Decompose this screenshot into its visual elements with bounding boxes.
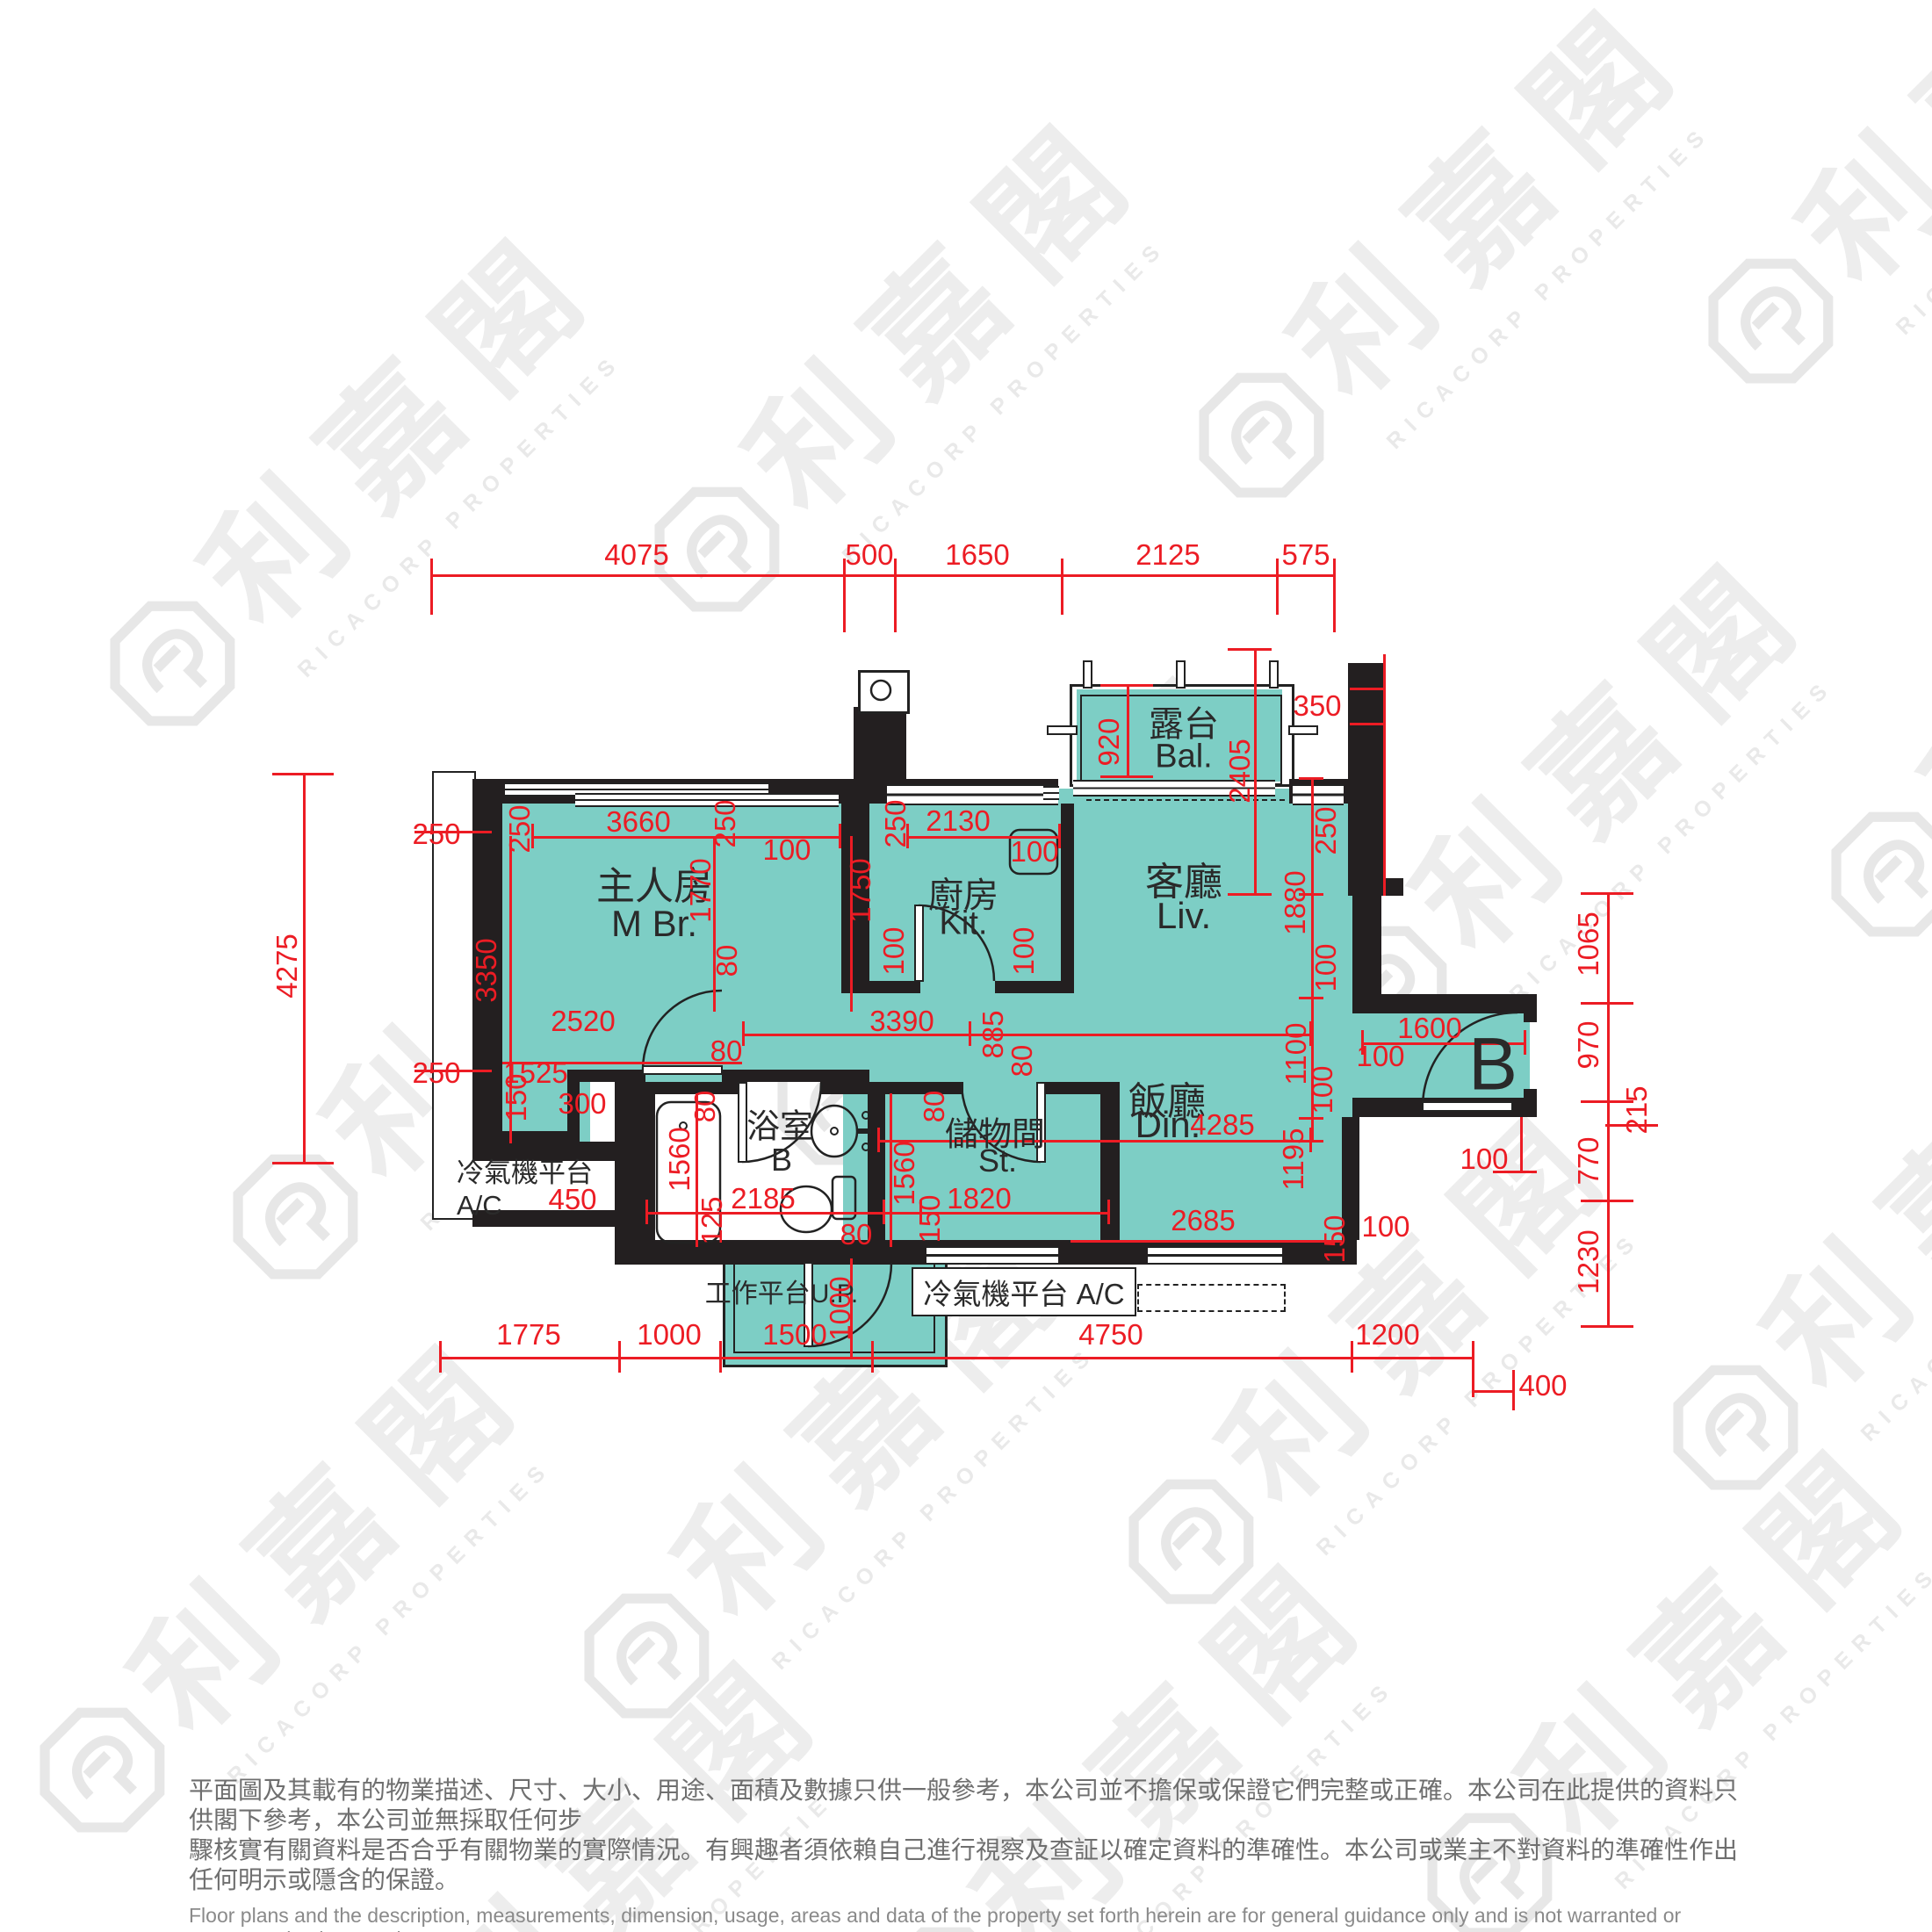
dim-label: 4750 — [1078, 1318, 1143, 1352]
room-label-living-room-en: Liv. — [1157, 895, 1211, 937]
dimline-2685 — [1071, 1240, 1342, 1243]
dim-label: 970 — [1572, 1020, 1605, 1069]
dim-label: 250 — [879, 799, 912, 847]
tap-knob-2 — [862, 1143, 869, 1150]
tick-bot-5 — [1472, 1341, 1474, 1397]
dim-label: 2130 — [926, 804, 990, 838]
tick-1820-r — [1107, 1200, 1110, 1224]
entrance-flat-letter: B — [1468, 1022, 1517, 1107]
dimline-920 — [1127, 684, 1129, 777]
dim-label: 100 — [1309, 943, 1343, 991]
dim-label: 250 — [412, 818, 460, 851]
dim-label: 250 — [503, 804, 537, 853]
dim-label: 250 — [709, 799, 742, 847]
room-label-storage-en: St. — [978, 1143, 1017, 1179]
tick-bot-2 — [719, 1341, 722, 1373]
dimline-right-column — [1607, 892, 1610, 1325]
room-label-kitchen-en: Kit. — [940, 905, 988, 943]
dim-label: 300 — [558, 1087, 606, 1121]
dim-label: 1065 — [1572, 912, 1605, 976]
dim-label: 100 — [877, 926, 911, 975]
dim-label: 4275 — [270, 934, 304, 998]
tick-1600-r — [1524, 1030, 1526, 1055]
dim-label: 3390 — [869, 1005, 934, 1038]
tick-3660-r — [839, 824, 841, 848]
tick-bot-0 — [439, 1341, 442, 1373]
bathroom-sink — [811, 1106, 857, 1157]
tick-top-4 — [1276, 559, 1279, 615]
dim-label: 2185 — [731, 1182, 795, 1215]
dim-label: 80 — [688, 1091, 722, 1123]
tick-bot-4 — [1351, 1341, 1353, 1373]
dimline-corridor-100 — [1520, 1117, 1523, 1171]
tick-4285-l — [877, 1128, 880, 1152]
dim-label: 2405 — [1223, 739, 1257, 803]
dim-label: 920 — [1092, 717, 1126, 766]
bathroom-sink-drain — [831, 1128, 838, 1135]
dim-label: 1600 — [1397, 1012, 1461, 1045]
tick-3390-l — [742, 1021, 745, 1046]
dim-label: 80 — [918, 1091, 951, 1123]
dim-label: 100 — [1460, 1143, 1508, 1176]
dimline-top — [430, 574, 1335, 577]
tick-3390-m — [969, 1021, 971, 1046]
dim-label: 125 — [696, 1196, 729, 1244]
dim-label: 150 — [913, 1194, 947, 1243]
dim-label: 1195 — [1277, 1128, 1310, 1191]
tick-right-6 — [1581, 1325, 1633, 1328]
dim-label: 100 — [1010, 835, 1058, 869]
dim-label: 1560 — [663, 1127, 696, 1191]
tick-bot-3 — [871, 1341, 874, 1373]
dim-label: 3350 — [470, 938, 503, 1002]
dim-label: 2520 — [551, 1005, 615, 1038]
dim-label: 2125 — [1135, 538, 1200, 572]
dim-label: 4075 — [604, 538, 668, 572]
tick-top-3 — [1061, 559, 1063, 615]
dim-label: 2685 — [1171, 1204, 1235, 1237]
dim-label: 500 — [845, 538, 893, 572]
room-label-bathroom-zh: 浴室 — [746, 1099, 813, 1148]
dim-label: 100 — [1361, 1210, 1409, 1244]
dimline-400 — [1472, 1390, 1512, 1393]
bathroom-door-leaf — [739, 1083, 746, 1162]
dim-label: 1230 — [1572, 1229, 1605, 1294]
dim-label: 100 — [762, 833, 811, 867]
tick-top-5 — [1333, 559, 1336, 632]
tick-bot-1 — [618, 1341, 621, 1373]
tap-knob-1 — [862, 1112, 869, 1119]
dim-label: 3660 — [606, 805, 670, 839]
dim-label: 1820 — [947, 1182, 1011, 1215]
dim-label: 100 — [1007, 926, 1041, 975]
dim-label: 1000 — [824, 1276, 857, 1340]
dim-label: 1750 — [844, 858, 877, 922]
dim-label: 80 — [710, 945, 744, 977]
dim-label: 1775 — [496, 1318, 560, 1352]
dim-label: 1880 — [1279, 870, 1312, 934]
dim-label: 4285 — [1190, 1108, 1254, 1142]
dim-label: 215 — [1620, 1085, 1654, 1134]
dimline-3390-885 — [742, 1034, 1311, 1036]
dim-label: 770 — [1572, 1136, 1605, 1185]
tick-2185-r — [883, 1200, 885, 1224]
dim-label: 350 — [1293, 689, 1341, 723]
dim-label: 400 — [1518, 1369, 1567, 1402]
tick-2405-top — [1228, 648, 1272, 651]
tick-top-2 — [894, 559, 897, 632]
dim-label: 1200 — [1355, 1318, 1419, 1352]
dim-label: 80 — [840, 1218, 873, 1251]
tick-2185-l — [645, 1200, 648, 1224]
dim-label: 1500 — [762, 1318, 826, 1352]
dim-label: 80 — [1006, 1045, 1039, 1078]
dim-label: 100 — [1356, 1040, 1404, 1073]
dim-label: 150 — [500, 1073, 533, 1121]
room-label-bathroom-en: B — [771, 1142, 792, 1179]
room-label-balcony-en: Bal. — [1155, 739, 1212, 776]
dim-label: 150 — [1318, 1215, 1352, 1263]
dim-label: 1650 — [945, 538, 1009, 572]
tick-350-bottom — [1350, 723, 1385, 725]
dim-label: 250 — [412, 1056, 460, 1090]
dimline-350-column — [1383, 654, 1386, 896]
dim-label: 1770 — [684, 858, 717, 922]
duct-vent-circle — [871, 681, 890, 700]
dim-label: 450 — [548, 1183, 596, 1216]
tick-350-top — [1350, 688, 1385, 690]
ac-platform-bottom-label: 冷氣機平台 A/C — [912, 1267, 1136, 1316]
dimline-bottom — [439, 1357, 1472, 1359]
dim-label: 575 — [1281, 538, 1330, 572]
dim-label: 100 — [1306, 1065, 1339, 1114]
kitchen-door-leaf — [915, 905, 923, 981]
tick-top-0 — [430, 559, 433, 615]
dim-label: 1000 — [637, 1318, 701, 1352]
tick-400 — [1512, 1370, 1515, 1410]
floorplan-canvas: 利嘉閣 RICACORP PROPERTIES 利嘉閣 RICACORP PRO… — [0, 0, 1932, 1932]
dim-label: 250 — [1309, 806, 1343, 854]
tick-2405-bottom — [1228, 893, 1272, 896]
dim-label: 80 — [710, 1034, 743, 1068]
